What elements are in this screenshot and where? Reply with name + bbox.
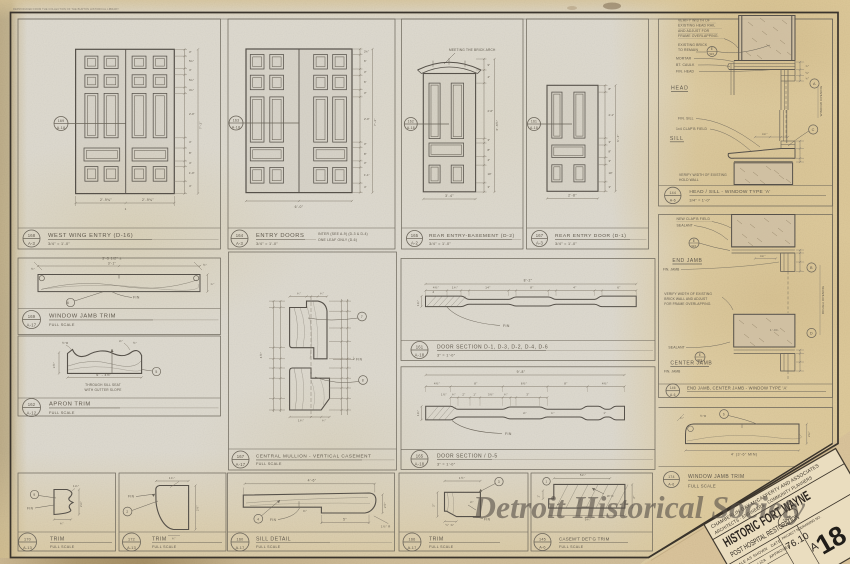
svg-text:¾": ¾" xyxy=(297,292,301,296)
svg-text:CENTRAL MULLION - VERTICAL CAS: CENTRAL MULLION - VERTICAL CASEMENT xyxy=(256,454,371,459)
svg-text:5: 5 xyxy=(155,370,157,374)
svg-text:W6: W6 xyxy=(692,244,697,248)
svg-text:3" = 1'-0": 3" = 1'-0" xyxy=(437,463,456,467)
svg-text:A-6: A-6 xyxy=(668,483,674,487)
svg-text:167: 167 xyxy=(237,454,245,459)
svg-text:AND ADJUST FOR: AND ADJUST FOR xyxy=(678,29,710,33)
svg-text:4": 4" xyxy=(189,140,192,144)
svg-text:2'-0": 2'-0" xyxy=(189,112,195,116)
svg-text:2'-0": 2'-0" xyxy=(364,117,370,121)
svg-text:3¾": 3¾" xyxy=(189,88,194,92)
svg-text:6" - 4½": 6" - 4½" xyxy=(96,373,112,377)
svg-text:1'-1": 1'-1" xyxy=(364,173,370,177)
svg-text:WITH GUTTER SLOPE: WITH GUTTER SLOPE xyxy=(84,388,121,392)
svg-text:6'-8½": 6'-8½" xyxy=(495,120,499,131)
svg-text:FIN: FIN xyxy=(356,358,363,362)
svg-text:2": 2" xyxy=(432,503,436,506)
svg-text:7: 7 xyxy=(361,315,363,319)
svg-text:4": 4" xyxy=(573,286,576,290)
svg-text:BRICK WALL AND ADJUST: BRICK WALL AND ADJUST xyxy=(664,297,707,301)
svg-text:3": 3" xyxy=(609,159,612,163)
svg-text:½": ½" xyxy=(31,267,35,271)
svg-text:1¾": 1¾" xyxy=(452,286,458,290)
svg-text:HEAD / SILL - WINDOW TYPE: HEAD / SILL - WINDOW TYPE 'A' xyxy=(689,189,770,195)
svg-text:168: 168 xyxy=(28,233,36,238)
svg-text:2¾": 2¾" xyxy=(807,431,811,437)
svg-text:2'-9¾": 2'-9¾" xyxy=(142,198,154,202)
svg-text:CASEM'T DET'G TRIM: CASEM'T DET'G TRIM xyxy=(559,537,610,542)
svg-text:3: 3 xyxy=(498,480,500,484)
svg-text:A-6: A-6 xyxy=(670,393,676,397)
svg-text:3": 3" xyxy=(364,91,367,95)
svg-text:3": 3" xyxy=(364,161,367,165)
svg-text:E: E xyxy=(711,47,714,51)
svg-text:6: 6 xyxy=(67,301,69,305)
svg-text:5¾": 5¾" xyxy=(189,78,194,82)
svg-text:4": 4" xyxy=(189,68,192,72)
svg-text:1¾": 1¾" xyxy=(416,410,420,416)
svg-text:5¼": 5¼" xyxy=(580,473,586,477)
svg-text:A-17: A-17 xyxy=(27,322,37,327)
svg-text:FULL SCALE: FULL SCALE xyxy=(559,545,584,549)
svg-text:FIN: FIN xyxy=(27,507,34,511)
svg-text:8": 8" xyxy=(474,382,477,386)
svg-text:FRAME OVERLAPPING.: FRAME OVERLAPPING. xyxy=(678,34,719,38)
svg-text:3": 3" xyxy=(364,70,367,74)
svg-text:¾": ¾" xyxy=(60,522,64,526)
svg-text:4½": 4½" xyxy=(602,382,608,386)
svg-text:3/4" = 1'-0": 3/4" = 1'-0" xyxy=(555,242,577,246)
svg-text:MEETING THE BRICK ARCH: MEETING THE BRICK ARCH xyxy=(449,48,496,52)
svg-text:WINDOW OPENING: WINDOW OPENING xyxy=(819,85,823,116)
svg-text:¾": ¾" xyxy=(551,411,555,415)
svg-text:8": 8" xyxy=(564,382,567,386)
svg-text:1½": 1½" xyxy=(441,393,447,397)
svg-text:SILL: SILL xyxy=(670,136,684,142)
svg-text:3": 3" xyxy=(488,138,491,142)
svg-text:⅜": ⅜" xyxy=(303,509,307,513)
svg-text:167: 167 xyxy=(536,233,544,238)
svg-text:4¼": 4¼" xyxy=(762,132,768,136)
svg-text:1x4 CLAP'B FIELD: 1x4 CLAP'B FIELD xyxy=(676,127,708,131)
svg-text:W6: W6 xyxy=(710,52,715,56)
svg-text:FIN. HEAD: FIN. HEAD xyxy=(676,70,695,74)
svg-text:⅛": ⅛" xyxy=(523,411,527,415)
svg-text:8": 8" xyxy=(189,151,192,155)
svg-text:169: 169 xyxy=(28,314,36,319)
svg-text:A-3: A-3 xyxy=(536,241,544,246)
svg-text:4: 4 xyxy=(257,517,259,521)
svg-text:3" = 1'-0": 3" = 1'-0" xyxy=(437,354,456,358)
svg-text:FIN: FIN xyxy=(128,495,135,499)
svg-text:1": 1" xyxy=(603,411,606,415)
svg-text:9": 9" xyxy=(488,63,491,67)
svg-text:2'-9¾": 2'-9¾" xyxy=(100,198,112,202)
svg-text:8": 8" xyxy=(488,148,491,152)
svg-text:A: A xyxy=(813,82,816,86)
svg-text:4' (3'-6" MIN): 4' (3'-6" MIN) xyxy=(731,453,757,457)
svg-text:½": ½" xyxy=(203,263,207,267)
svg-text:161: 161 xyxy=(416,344,424,349)
svg-text:4": 4" xyxy=(488,75,491,79)
svg-text:C: C xyxy=(812,128,815,132)
svg-text:REAR ENTRY DOOR (D-1): REAR ENTRY DOOR (D-1) xyxy=(555,233,626,239)
svg-text:¾": ¾" xyxy=(172,537,176,541)
svg-text:6'-0": 6'-0" xyxy=(295,205,304,209)
svg-text:FIN. SILL: FIN. SILL xyxy=(678,117,694,121)
svg-text:8: 8 xyxy=(362,379,364,383)
svg-text:3": 3" xyxy=(609,185,612,189)
svg-text:10": 10" xyxy=(488,172,492,176)
svg-text:2'-6": 2'-6" xyxy=(488,109,494,113)
svg-text:A-18: A-18 xyxy=(57,126,65,130)
svg-text:▲: ▲ xyxy=(432,291,435,294)
svg-text:A-17: A-17 xyxy=(408,546,417,550)
svg-text:FULL SCALE: FULL SCALE xyxy=(50,545,75,549)
svg-text:165: 165 xyxy=(411,233,419,238)
svg-text:SEALANT: SEALANT xyxy=(668,346,685,350)
svg-text:HOLD WALL: HOLD WALL xyxy=(679,178,699,182)
svg-text:6½": 6½" xyxy=(521,382,527,386)
svg-text:166: 166 xyxy=(409,537,416,541)
svg-text:10": 10" xyxy=(609,171,613,175)
svg-text:FIN: FIN xyxy=(503,324,510,328)
svg-text:A-13: A-13 xyxy=(23,546,32,550)
svg-text:A-3: A-3 xyxy=(236,241,244,246)
svg-text:164: 164 xyxy=(236,233,244,238)
svg-text:HEAD: HEAD xyxy=(671,86,689,92)
svg-text:END JAMB: END JAMB xyxy=(672,258,702,264)
svg-text:MORTAR: MORTAR xyxy=(676,57,692,61)
svg-text:162: 162 xyxy=(28,402,36,407)
svg-text:¾": ¾" xyxy=(806,64,810,68)
svg-text:INTER (SEE A-9) (D-3 & D-4): INTER (SEE A-9) (D-3 & D-4) xyxy=(318,232,368,236)
svg-text:EXISTING BRICK: EXISTING BRICK xyxy=(678,43,708,47)
svg-text:A-18: A-18 xyxy=(232,126,240,130)
svg-text:VERIFY WIDTH OF: VERIFY WIDTH OF xyxy=(678,19,710,23)
svg-text:2½": 2½" xyxy=(196,505,200,511)
svg-text:3": 3" xyxy=(609,140,612,144)
svg-text:4¼": 4¼" xyxy=(760,254,766,258)
svg-text:½"R: ½"R xyxy=(62,341,69,345)
svg-text:8": 8" xyxy=(609,87,612,91)
svg-text:FULL SCALE: FULL SCALE xyxy=(256,545,281,549)
svg-text:1¾": 1¾" xyxy=(169,476,175,480)
svg-text:172: 172 xyxy=(128,537,135,541)
svg-text:146: 146 xyxy=(670,386,676,390)
svg-text:FULL SCALE: FULL SCALE xyxy=(688,484,716,489)
svg-text:3½": 3½" xyxy=(488,393,494,397)
svg-text:2¼": 2¼" xyxy=(79,501,83,507)
svg-text:5¾": 5¾" xyxy=(189,59,194,63)
svg-text:END JAMB, CENTER JAMB - WINDOW: END JAMB, CENTER JAMB - WINDOW TYPE 'A' xyxy=(687,385,788,390)
svg-text:½": ½" xyxy=(806,71,810,75)
svg-text:3": 3" xyxy=(189,50,192,54)
svg-text:FULL SCALE: FULL SCALE xyxy=(49,323,75,327)
svg-text:REPRODUCED FROM THE COLLECTION: REPRODUCED FROM THE COLLECTION OF THE BU… xyxy=(13,7,119,11)
svg-text:ENTRY DOORS: ENTRY DOORS xyxy=(256,233,304,239)
svg-text:8": 8" xyxy=(364,152,367,156)
svg-text:WEST WING ENTRY (D-16): WEST WING ENTRY (D-16) xyxy=(48,233,133,239)
svg-text:169: 169 xyxy=(58,119,65,123)
svg-text:3½": 3½" xyxy=(52,362,56,368)
svg-text:4": 4" xyxy=(488,158,491,162)
svg-text:3": 3" xyxy=(364,142,367,146)
svg-text:174: 174 xyxy=(668,475,675,479)
svg-text:REAR ENTRY-BASEMENT (D-2): REAR ENTRY-BASEMENT (D-2) xyxy=(429,233,515,239)
svg-text:161: 161 xyxy=(531,119,537,123)
svg-text:2": 2" xyxy=(462,393,465,397)
svg-text:3'-5 1/2" ±: 3'-5 1/2" ± xyxy=(102,257,122,261)
svg-text:SEALANT: SEALANT xyxy=(677,224,694,228)
svg-text:FIN. JAMB: FIN. JAMB xyxy=(664,370,680,374)
svg-text:1": 1" xyxy=(473,393,476,397)
svg-text:A-3: A-3 xyxy=(28,241,36,246)
svg-text:B: B xyxy=(810,266,813,270)
svg-text:3/4" = 1'-0": 3/4" = 1'-0" xyxy=(48,242,70,246)
svg-text:TRIM: TRIM xyxy=(429,537,444,543)
svg-text:EXISTING HEAD RAIL: EXISTING HEAD RAIL xyxy=(678,24,715,28)
svg-text:9'-8": 9'-8" xyxy=(517,370,526,374)
svg-text:6": 6" xyxy=(364,59,367,63)
svg-text:½": ½" xyxy=(133,341,137,345)
svg-text:¾": ¾" xyxy=(452,393,456,397)
svg-text:2½": 2½" xyxy=(383,502,387,508)
svg-text:3/4" = 1'-0": 3/4" = 1'-0" xyxy=(689,199,710,203)
svg-text:A-6: A-6 xyxy=(670,199,676,203)
svg-text:VERIFY WIDTH OF EXISTING: VERIFY WIDTH OF EXISTING xyxy=(679,173,727,177)
svg-text:WINDOW JAMB TRIM: WINDOW JAMB TRIM xyxy=(49,314,116,320)
svg-text:½"R: ½"R xyxy=(700,414,707,418)
svg-text:APRON TRIM: APRON TRIM xyxy=(49,402,91,408)
svg-text:1½": 1½" xyxy=(459,476,465,480)
svg-text:E: E xyxy=(693,239,696,243)
svg-text:¾": ¾" xyxy=(322,419,326,423)
svg-text:ROUGH OPENING: ROUGH OPENING xyxy=(821,285,825,314)
svg-text:FIN. JAMB: FIN. JAMB xyxy=(663,268,679,272)
svg-text:FIN: FIN xyxy=(270,518,277,522)
svg-text:¾": ¾" xyxy=(504,393,508,397)
svg-text:4½": 4½" xyxy=(433,286,439,290)
svg-text:4": 4" xyxy=(189,184,192,188)
svg-text:FIN: FIN xyxy=(133,296,140,300)
svg-text:4'-6": 4'-6" xyxy=(308,478,317,482)
svg-text:3": 3" xyxy=(526,393,529,397)
svg-text:A-18: A-18 xyxy=(415,461,425,466)
svg-text:¾": ¾" xyxy=(680,416,684,420)
svg-text:WINDOW JAMB TRIM: WINDOW JAMB TRIM xyxy=(688,474,745,480)
svg-text:DOOR SECTION / D-5: DOOR SECTION / D-5 xyxy=(437,453,498,459)
svg-text:¾": ¾" xyxy=(320,292,324,296)
svg-text:160: 160 xyxy=(237,537,244,541)
svg-text:6": 6" xyxy=(617,286,620,290)
svg-text:162: 162 xyxy=(408,119,414,123)
svg-text:A-18: A-18 xyxy=(530,126,538,130)
svg-text:A-18: A-18 xyxy=(415,352,425,357)
svg-text:3/4" = 1'-0": 3/4" = 1'-0" xyxy=(429,242,451,246)
svg-text:4": 4" xyxy=(364,185,367,189)
svg-text:¾": ¾" xyxy=(211,282,215,286)
svg-text:A-18: A-18 xyxy=(407,126,415,130)
svg-text:FULL SCALE: FULL SCALE xyxy=(256,462,282,466)
svg-text:7'-2": 7'-2" xyxy=(199,121,203,129)
svg-text:163: 163 xyxy=(233,118,240,122)
svg-text:6: 6 xyxy=(723,413,725,417)
svg-text:A-17: A-17 xyxy=(236,546,245,550)
svg-text:1¼": 1¼" xyxy=(298,419,304,423)
svg-text:ONE LEAF ONLY (D-6): ONE LEAF ONLY (D-6) xyxy=(318,238,357,242)
svg-text:3'-1": 3'-1" xyxy=(108,262,116,266)
svg-text:½" ⅜": ½" ⅜" xyxy=(446,523,455,527)
svg-text:FULL SCALE: FULL SCALE xyxy=(49,411,75,415)
svg-text:1¾": 1¾" xyxy=(416,300,420,306)
svg-text:SILL DETAIL: SILL DETAIL xyxy=(256,537,291,543)
svg-text:FULL SCALE: FULL SCALE xyxy=(152,545,177,549)
svg-text:7'-2": 7'-2" xyxy=(373,118,377,126)
svg-text:1'-0¾: 1'-0¾ xyxy=(770,328,779,332)
svg-text:VERIFY WIDTH OF EXISTING: VERIFY WIDTH OF EXISTING xyxy=(664,292,712,296)
svg-text:1⅛": 1⅛" xyxy=(73,484,79,488)
svg-text:6'-4": 6'-4" xyxy=(616,134,620,142)
svg-text:170: 170 xyxy=(24,537,31,541)
svg-text:4½": 4½" xyxy=(259,352,263,358)
svg-text:2'-1": 2'-1" xyxy=(609,113,615,117)
svg-text:4": 4" xyxy=(189,161,192,165)
svg-text:BT. CAULK: BT. CAULK xyxy=(676,63,695,67)
svg-text:144: 144 xyxy=(669,191,676,195)
svg-text:TRIM: TRIM xyxy=(50,537,65,543)
svg-text:1½" R: 1½" R xyxy=(381,525,391,529)
svg-text:8": 8" xyxy=(609,150,612,154)
svg-text:A-2: A-2 xyxy=(411,241,419,246)
svg-text:9: 9 xyxy=(33,493,35,497)
svg-text:THROUGH SILL SEAT: THROUGH SILL SEAT xyxy=(85,383,121,387)
svg-text:4½": 4½" xyxy=(434,382,440,386)
svg-text:1: 1 xyxy=(125,207,127,211)
svg-text:FULL SCALE: FULL SCALE xyxy=(429,545,454,549)
svg-text:165: 165 xyxy=(416,453,424,458)
svg-text:A-13: A-13 xyxy=(127,546,136,550)
svg-text:3": 3" xyxy=(488,185,491,189)
svg-text:1'-0": 1'-0" xyxy=(189,171,195,175)
svg-text:¾": ¾" xyxy=(806,77,810,81)
svg-text:1: 1 xyxy=(545,480,547,484)
svg-text:CENTER JAMB: CENTER JAMB xyxy=(670,361,712,367)
svg-text:8'-2": 8'-2" xyxy=(524,279,533,283)
svg-text:2¾": 2¾" xyxy=(364,50,369,54)
svg-text:5": 5" xyxy=(343,518,347,522)
svg-text:TO REMAIN: TO REMAIN xyxy=(678,48,699,52)
svg-text:Detroit Historical Society: Detroit Historical Society xyxy=(472,489,806,525)
svg-text:A-6: A-6 xyxy=(539,545,546,549)
svg-text:TRIM: TRIM xyxy=(152,537,167,543)
svg-text:DOOR SECTION D-1, D-3, D-2,: DOOR SECTION D-1, D-3, D-2, D-4, D-6 xyxy=(437,344,548,350)
svg-text:6": 6" xyxy=(364,80,367,84)
svg-text:3'-4": 3'-4" xyxy=(445,194,454,198)
svg-text:NEW CLAP'B FIELD: NEW CLAP'B FIELD xyxy=(677,217,711,221)
svg-text:2: 2 xyxy=(126,510,128,514)
svg-text:A-17: A-17 xyxy=(236,462,246,467)
svg-text:2'-8": 2'-8" xyxy=(568,194,577,198)
svg-text:D: D xyxy=(810,332,813,336)
svg-text:A-12: A-12 xyxy=(27,410,37,415)
svg-text:14": 14" xyxy=(485,286,490,290)
svg-text:FOR FRAME OVERLAPPING.: FOR FRAME OVERLAPPING. xyxy=(664,302,711,306)
svg-text:⅛": ⅛" xyxy=(119,339,123,343)
svg-text:8": 8" xyxy=(530,286,533,290)
svg-text:E: E xyxy=(699,353,702,357)
svg-text:145: 145 xyxy=(539,537,546,541)
svg-text:3/4" = 1'-0": 3/4" = 1'-0" xyxy=(256,242,278,246)
svg-text:FIN: FIN xyxy=(505,432,512,436)
